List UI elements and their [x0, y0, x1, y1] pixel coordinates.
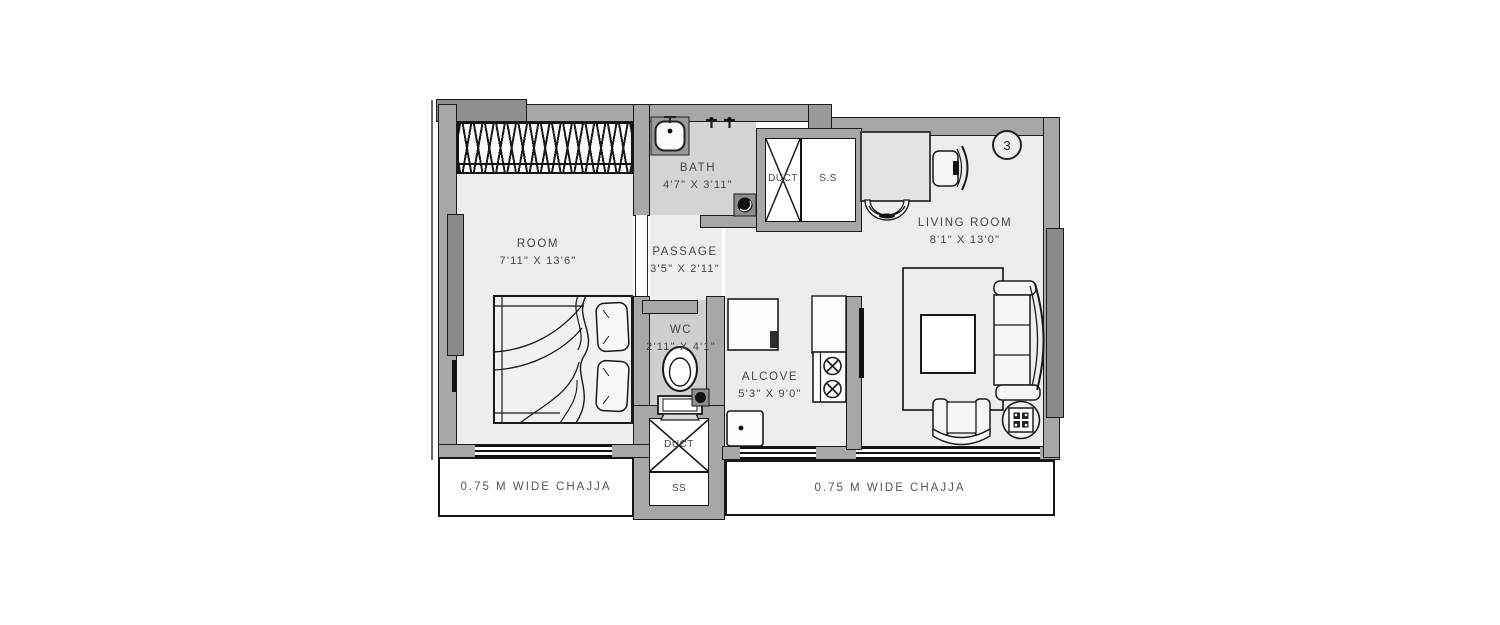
passage-name: PASSAGE [650, 244, 720, 261]
living-room-dims: 8'1" X 13'0" [918, 232, 1012, 249]
room-name: ROOM [500, 236, 577, 253]
wall [808, 104, 832, 130]
bedroom-door-opening [635, 215, 648, 300]
passage-dims: 3'5" X 2'11" [650, 261, 720, 278]
ss-top-label: S.S [819, 173, 837, 184]
outer-boundary-line [431, 100, 433, 460]
living-room-label: LIVING ROOM 8'1" X 13'0" [918, 215, 1012, 249]
wc-dims: 2'11" X 4'1" [646, 339, 716, 356]
bath-label: BATH 4'7" X 3'11" [663, 160, 733, 194]
living-room-name: LIVING ROOM [918, 215, 1012, 232]
alcove-label: ALCOVE 5'3" X 9'0" [738, 369, 801, 403]
chajja-right-label: 0.75 M WIDE CHAJJA [814, 482, 965, 494]
room-dims: 7'11" X 13'6" [500, 253, 577, 270]
unit-number: 3 [1003, 138, 1010, 153]
duct-top-label: DUCT [768, 173, 798, 184]
duct-bottom-label: DUCT [664, 439, 694, 450]
chajja-left: 0.75 M WIDE CHAJJA [438, 457, 634, 517]
living-window [856, 447, 1040, 459]
wardrobe-rail [459, 163, 631, 165]
bedroom-window [475, 445, 612, 457]
wall [633, 104, 650, 216]
wall [700, 215, 762, 228]
wall-ledge [447, 214, 464, 356]
alcove-name: ALCOVE [738, 369, 801, 386]
wc-floor [650, 300, 706, 412]
alcove-floor [725, 228, 862, 446]
wall [642, 300, 698, 314]
passage-label: PASSAGE 3'5" X 2'11" [650, 244, 720, 278]
ss-bottom-label: SS [672, 483, 686, 494]
bath-name: BATH [663, 160, 733, 177]
wall-ledge [1046, 228, 1064, 418]
floor-plan: 0.75 M WIDE CHAJJA 0.75 M WIDE CHAJJA [0, 0, 1500, 625]
room-label: ROOM 7'11" X 13'6" [500, 236, 577, 270]
alcove-dims: 5'3" X 9'0" [738, 386, 801, 403]
unit-number-badge: 3 [992, 130, 1022, 160]
wall-mark [452, 360, 456, 392]
wc-name: WC [646, 322, 716, 339]
living-floor [862, 136, 1043, 446]
platform-edge [859, 308, 864, 378]
wc-label: WC 2'11" X 4'1" [646, 322, 716, 356]
chajja-left-label: 0.75 M WIDE CHAJJA [460, 481, 611, 493]
alcove-window [740, 447, 816, 459]
chajja-right: 0.75 M WIDE CHAJJA [725, 460, 1055, 516]
bath-dims: 4'7" X 3'11" [663, 177, 733, 194]
wardrobe [457, 122, 633, 174]
